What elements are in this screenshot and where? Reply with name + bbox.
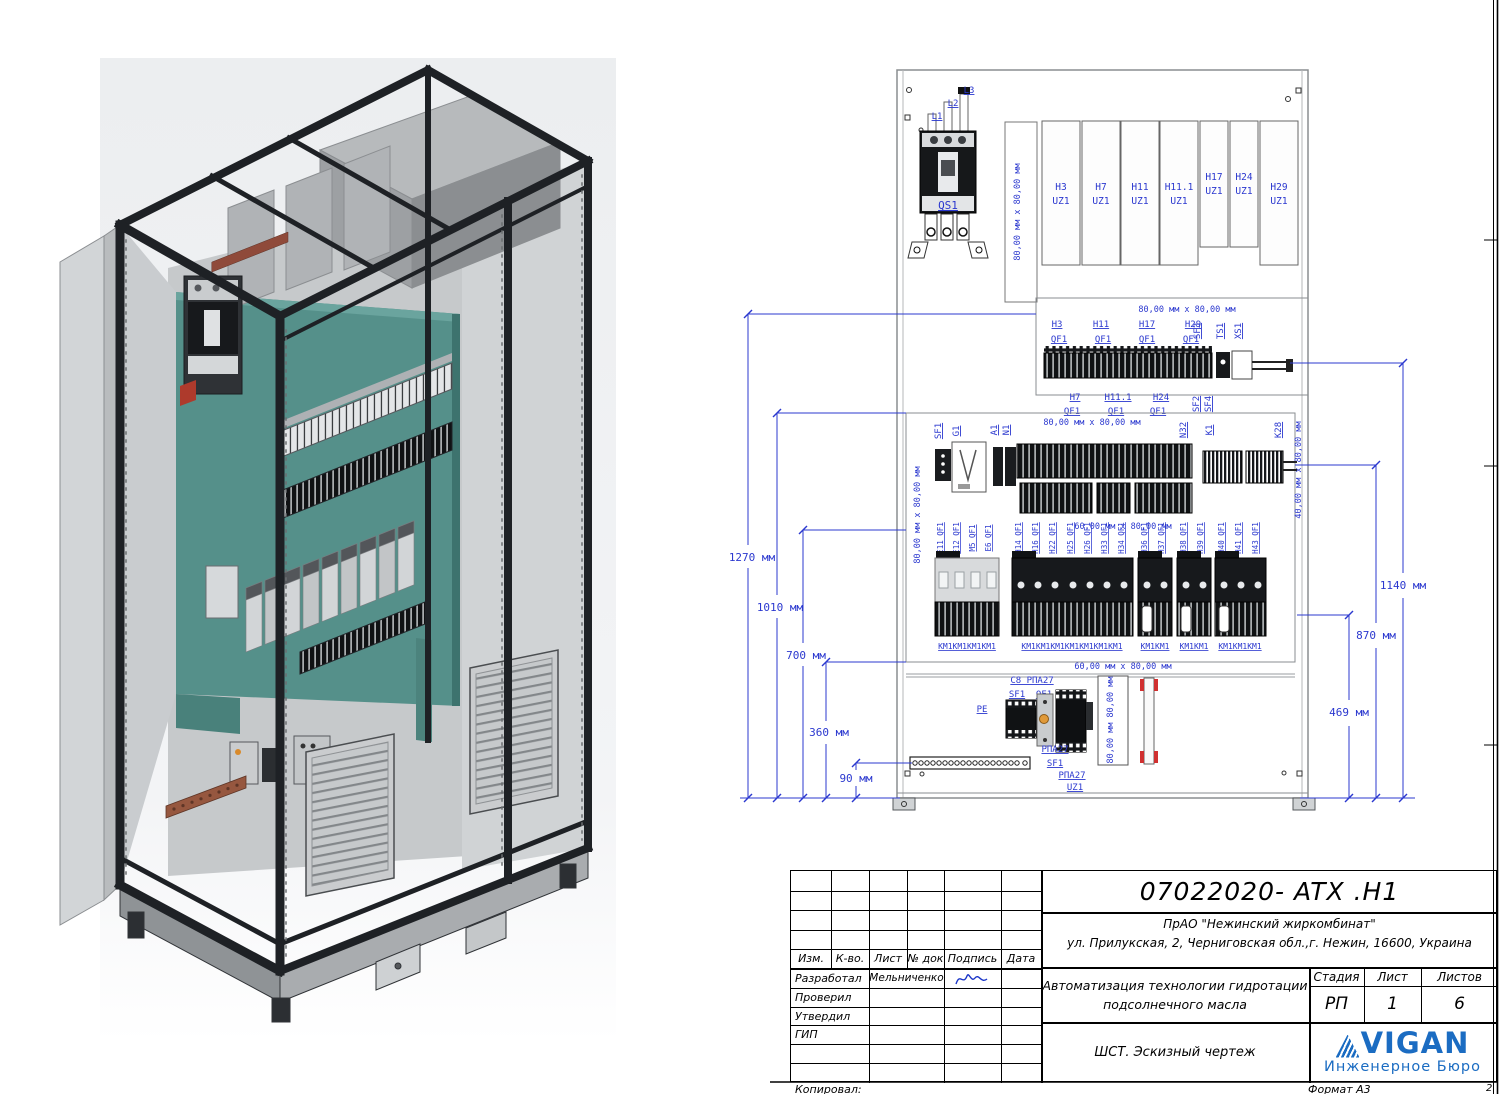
duct-size-label: 80,00 мм x 80,00 мм xyxy=(1013,163,1023,260)
svg-text:H26 QF1: H26 QF1 xyxy=(1083,522,1092,554)
sheet-label: Лист xyxy=(1364,967,1421,986)
col-izm: Изм. xyxy=(791,949,831,968)
label-sf1: SF1 xyxy=(1047,759,1063,769)
main-breaker-3d xyxy=(180,276,242,406)
rail1-id: H11.1 xyxy=(1104,393,1131,403)
col-data: Дата xyxy=(1001,949,1041,968)
project-title: Автоматизация технологии гидротации подс… xyxy=(1041,977,1309,1022)
col-ndoc: № док xyxy=(907,949,944,968)
km-labels: КМ1КМ1КМ1КМ1 xyxy=(938,642,996,651)
svg-text:H34 QF1: H34 QF1 xyxy=(1117,522,1126,554)
col-podpis: Подпись xyxy=(944,949,1001,968)
stage-value: РП xyxy=(1309,986,1364,1022)
rail1-id: H3 xyxy=(1052,320,1063,330)
row-approved: Утвердил xyxy=(795,1007,869,1025)
module-unit: UZ1 xyxy=(1170,196,1187,207)
frequency-converter-modules xyxy=(1042,121,1298,265)
pe-terminal-strip xyxy=(910,757,1030,769)
module-id: H3 xyxy=(1055,182,1066,193)
label-phase-l1: L1 xyxy=(932,112,943,122)
vent-grille xyxy=(306,734,394,896)
rail1-id: H17 xyxy=(1139,320,1155,330)
client-name: ПрАО "Нежинский жиркомбинат" xyxy=(1041,915,1498,934)
svg-text:H38 QF1: H38 QF1 xyxy=(1179,522,1188,554)
svg-text:H25 QF1: H25 QF1 xyxy=(1066,522,1075,554)
rail1-side: SF3 xyxy=(1193,323,1203,339)
svg-text:E11 QF1: E11 QF1 xyxy=(936,522,945,554)
module-unit: UZ1 xyxy=(1052,196,1069,207)
rail1-id: H7 xyxy=(1070,393,1081,403)
rail1-dev: QF1 xyxy=(1139,335,1155,345)
duct-size-label: 80,00 мм 80,00 мм xyxy=(1106,677,1116,764)
panel-layout-2d: L1 L2 L3 QS1 80,00 мм x 80,00 мм H3 UZ1 … xyxy=(729,70,1427,810)
svg-text:H22 QF1: H22 QF1 xyxy=(1048,522,1057,554)
duct-size-label: 80,00 мм x 80,00 мм xyxy=(1138,305,1235,315)
page-corner-number: 2 xyxy=(1486,1083,1492,1094)
rail2-label: A1 xyxy=(990,425,1000,436)
row-developed: Разработал xyxy=(795,968,869,988)
psu-3d xyxy=(206,566,238,618)
duct-size-label: 60,00 мм x 80,00 мм xyxy=(1074,662,1171,672)
client-info: ПрАО "Нежинский жиркомбинат" ул. Прилукс… xyxy=(1041,915,1498,967)
rail1-dev: QF1 xyxy=(1150,407,1166,417)
row-gip: ГИП xyxy=(795,1025,869,1044)
module-unit: UZ1 xyxy=(1235,186,1252,197)
rail3-contactors xyxy=(935,602,1266,636)
dim-1270: 1270 мм xyxy=(729,551,776,564)
km-labels: КМ1КМ1КМ1 xyxy=(1218,642,1262,651)
drawing-sheet: L1 L2 L3 QS1 80,00 мм x 80,00 мм H3 UZ1 … xyxy=(0,0,1504,1094)
module-unit: UZ1 xyxy=(1092,196,1109,207)
km-labels: КМ1КМ1КМ1КМ1КМ1КМ1КМ1 xyxy=(1021,642,1122,651)
svg-text:H40 QF1: H40 QF1 xyxy=(1217,522,1226,554)
rail2-label: N1 xyxy=(1002,425,1012,436)
rail1-dev: QF1 xyxy=(1095,335,1111,345)
row-checked: Проверил xyxy=(795,988,869,1007)
module-unit: UZ1 xyxy=(1270,196,1287,207)
rail1-side: SF2 xyxy=(1192,396,1202,412)
module-id: H24 xyxy=(1235,172,1252,183)
cabinet-3d-view xyxy=(60,58,616,1042)
label-phase-l3: L3 xyxy=(964,86,975,96)
client-address: ул. Прилукская, 2, Черниговская обл.,г. … xyxy=(1041,934,1498,953)
rail2-label: SF1 xyxy=(934,423,944,439)
label-sf1: SF1 xyxy=(1009,690,1025,700)
sheets-label: Листов xyxy=(1421,967,1498,986)
rail1-id: H24 xyxy=(1153,393,1169,403)
svg-text:H14 QF1: H14 QF1 xyxy=(1014,522,1023,554)
panel-feet xyxy=(893,798,1315,810)
svg-text:M5 QF1: M5 QF1 xyxy=(968,524,977,551)
module-id: H17 xyxy=(1205,172,1222,183)
col-list: Лист xyxy=(869,949,907,968)
svg-text:E6 QF1: E6 QF1 xyxy=(984,524,993,551)
signature xyxy=(953,969,993,989)
rail2-label: G1 xyxy=(952,426,962,437)
module-unit: UZ1 xyxy=(1205,186,1222,197)
module-unit: UZ1 xyxy=(1131,196,1148,207)
svg-text:H33 QF1: H33 QF1 xyxy=(1100,522,1109,554)
dim-360: 360 мм xyxy=(809,726,849,739)
dim-700: 700 мм xyxy=(786,649,826,662)
svg-text:E12 QF1: E12 QF1 xyxy=(952,522,961,554)
label-uz1: UZ1 xyxy=(1067,783,1083,793)
project-line1: Автоматизация технологии гидротации xyxy=(1041,977,1309,996)
sheets-value: 6 xyxy=(1421,986,1498,1022)
rail1-side: XS1 xyxy=(1234,323,1244,339)
duct-size-label: 80,00 мм x 80,00 мм xyxy=(913,466,923,563)
km-labels: КМ1КМ1 xyxy=(1141,642,1170,651)
rail3-breakers xyxy=(935,551,1266,602)
left-side-panel xyxy=(60,225,120,925)
module-id: H29 xyxy=(1270,182,1287,193)
label-rpa27: РПА27 xyxy=(1058,771,1085,781)
rail1-dev: QF1 xyxy=(1108,407,1124,417)
duct-size-label: 80,00 мм x 80,00 мм xyxy=(1043,418,1140,428)
stage-label: Стадия xyxy=(1309,967,1364,986)
dim-870: 870 мм xyxy=(1356,629,1396,642)
label-c8-rpa27: C8 РПА27 xyxy=(1010,676,1053,686)
svg-text:H16 QF1: H16 QF1 xyxy=(1031,522,1040,554)
module-id: H11.1 xyxy=(1165,182,1194,193)
svg-text:H39 QF1: H39 QF1 xyxy=(1196,522,1205,554)
label-rpa27: РПА27 xyxy=(1041,745,1068,755)
col-kvo: К-во. xyxy=(831,949,869,968)
rail1-side: SF4 xyxy=(1204,396,1214,412)
svg-text:H41 QF1: H41 QF1 xyxy=(1234,522,1243,554)
dim-1140: 1140 мм xyxy=(1380,579,1427,592)
logo-text: VIGAN xyxy=(1361,1029,1470,1058)
module-id: H7 xyxy=(1095,182,1106,193)
svg-text:H43 QF1: H43 QF1 xyxy=(1251,522,1260,554)
sheet-value: 1 xyxy=(1364,986,1421,1022)
label-qs1: QS1 xyxy=(938,199,958,212)
rail1-dev: QF1 xyxy=(1064,407,1080,417)
vent-grille xyxy=(470,650,558,814)
logo-triangle-icon xyxy=(1336,1035,1360,1058)
document-number: 07022020- ATX .H1 xyxy=(1041,871,1498,912)
svg-text:H37 QF1: H37 QF1 xyxy=(1157,522,1166,554)
rail1-dev: QF1 xyxy=(1051,335,1067,345)
copied-label: Копировал: xyxy=(795,1083,862,1094)
dim-1010: 1010 мм xyxy=(757,601,804,614)
module-id: H11 xyxy=(1131,182,1148,193)
rail1-side: TS1 xyxy=(1216,323,1226,339)
km-labels: КМ1КМ1 xyxy=(1180,642,1209,651)
dim-90: 90 мм xyxy=(839,772,872,785)
document-type: ШСТ. Эскизный чертеж xyxy=(1041,1022,1309,1083)
label-phase-l2: L2 xyxy=(948,99,959,109)
format-label: Формат А3 xyxy=(1308,1083,1371,1094)
rail2-label: N32 xyxy=(1179,422,1189,438)
rail1-id: H11 xyxy=(1093,320,1109,330)
project-line2: подсолнечного масла xyxy=(1041,996,1309,1015)
dim-469: 469 мм xyxy=(1329,706,1369,719)
title-block: Изм. К-во. Лист № док Подпись Дата Разра… xyxy=(790,870,1497,1082)
label-pe: PE xyxy=(977,705,988,715)
developer-name: Мельниченко xyxy=(869,968,944,988)
rail2-label: K28 xyxy=(1274,422,1284,438)
logo-subtitle: Инженерное Бюро xyxy=(1324,1059,1481,1075)
rail2-label: K1 xyxy=(1205,425,1215,436)
vigan-logo: VIGAN Инженерное Бюро xyxy=(1309,1022,1496,1081)
svg-text:H36 QF1: H36 QF1 xyxy=(1140,522,1149,554)
